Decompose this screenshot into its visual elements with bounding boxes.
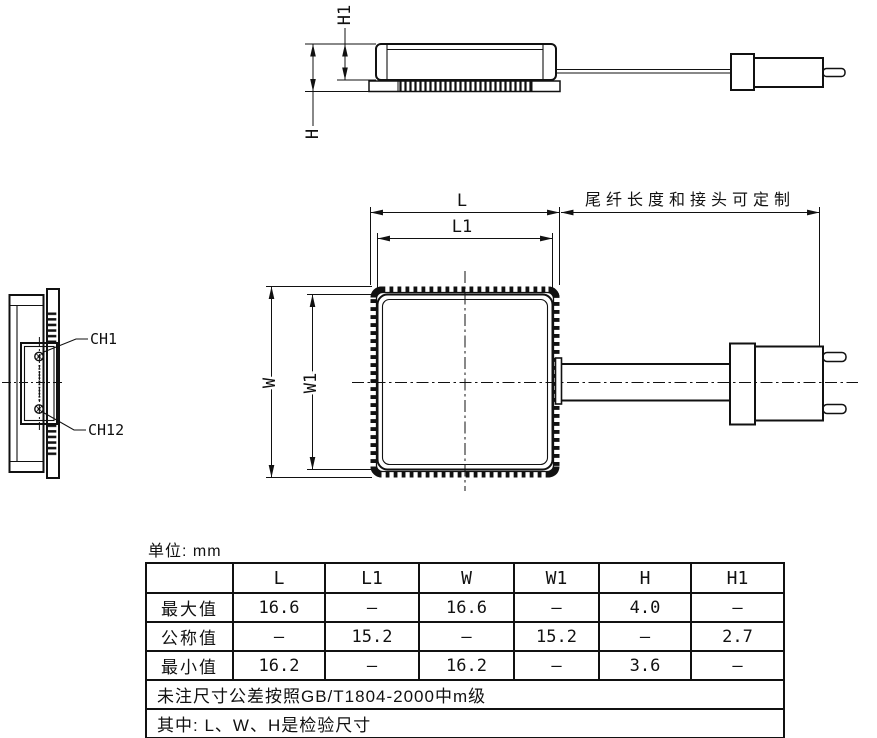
table-header-row: L L1 W W1 H H1 — [146, 563, 784, 593]
col-header-h: H — [599, 563, 691, 593]
table-row-max: 最大值 16.6 — 16.6 — 4.0 — — [146, 593, 784, 622]
table-cell: — — [514, 651, 599, 680]
ch12-label: CH12 — [88, 421, 124, 439]
table-cell: — — [233, 622, 325, 651]
table-cell: — — [691, 593, 784, 622]
heatsink-fins — [398, 81, 532, 92]
row-header: 最大值 — [146, 593, 233, 622]
table-cell: 3.6 — [599, 651, 691, 680]
ch1-label: CH1 — [90, 330, 117, 348]
units-label: 单位: mm — [148, 537, 222, 561]
table-cell: 2.7 — [691, 622, 784, 651]
tolerance-note: 未注尺寸公差按照GB/T1804-2000中m级 — [146, 680, 784, 709]
pigtail-note-label: 尾纤长度和接头可定制 — [585, 191, 795, 209]
table-cell: — — [325, 651, 419, 680]
table-corner-cell — [146, 563, 233, 593]
table-cell: 16.2 — [233, 651, 325, 680]
table-cell: 15.2 — [514, 622, 599, 651]
cable-strain-relief — [556, 358, 562, 404]
col-header-h1: H1 — [691, 563, 784, 593]
col-header-l: L — [233, 563, 325, 593]
table-cell: 16.6 — [233, 593, 325, 622]
dimension-spec-table: L L1 W W1 H H1 最大值 16.6 — 16.6 — 4.0 — 公… — [145, 562, 785, 738]
row-header: 公称值 — [146, 622, 233, 651]
table-row-nominal: 公称值 — 15.2 — 15.2 — 2.7 — [146, 622, 784, 651]
table-cell: 4.0 — [599, 593, 691, 622]
h1-dimension-label: H1 — [335, 5, 355, 25]
edge-ribs-bottom — [48, 423, 57, 457]
h-dimension-label: H — [303, 129, 323, 139]
l-dimension-label: L — [457, 191, 467, 211]
table-cell: — — [514, 593, 599, 622]
w-dimension-label: W — [260, 377, 280, 388]
table-cell: 16.2 — [419, 651, 514, 680]
table-cell: — — [599, 622, 691, 651]
l1-dimension-label: L1 — [452, 217, 472, 237]
col-header-w: W — [419, 563, 514, 593]
table-cell: — — [419, 622, 514, 651]
row-header: 最小值 — [146, 651, 233, 680]
w1-dimension-label: W1 — [301, 373, 321, 393]
table-cell: 16.6 — [419, 593, 514, 622]
table-cell: 15.2 — [325, 622, 419, 651]
engineering-drawing-page: H H1 L — [0, 0, 877, 738]
table-cell: — — [691, 651, 784, 680]
inspection-note: 其中: L、W、H是检验尺寸 — [146, 709, 784, 738]
col-header-w1: W1 — [514, 563, 599, 593]
edge-ribs-top — [48, 311, 57, 345]
table-note-row-1: 未注尺寸公差按照GB/T1804-2000中m级 — [146, 680, 784, 709]
table-row-min: 最小值 16.2 — 16.2 — 3.6 — — [146, 651, 784, 680]
table-note-row-2: 其中: L、W、H是检验尺寸 — [146, 709, 784, 738]
table-cell: — — [325, 593, 419, 622]
col-header-l1: L1 — [325, 563, 419, 593]
